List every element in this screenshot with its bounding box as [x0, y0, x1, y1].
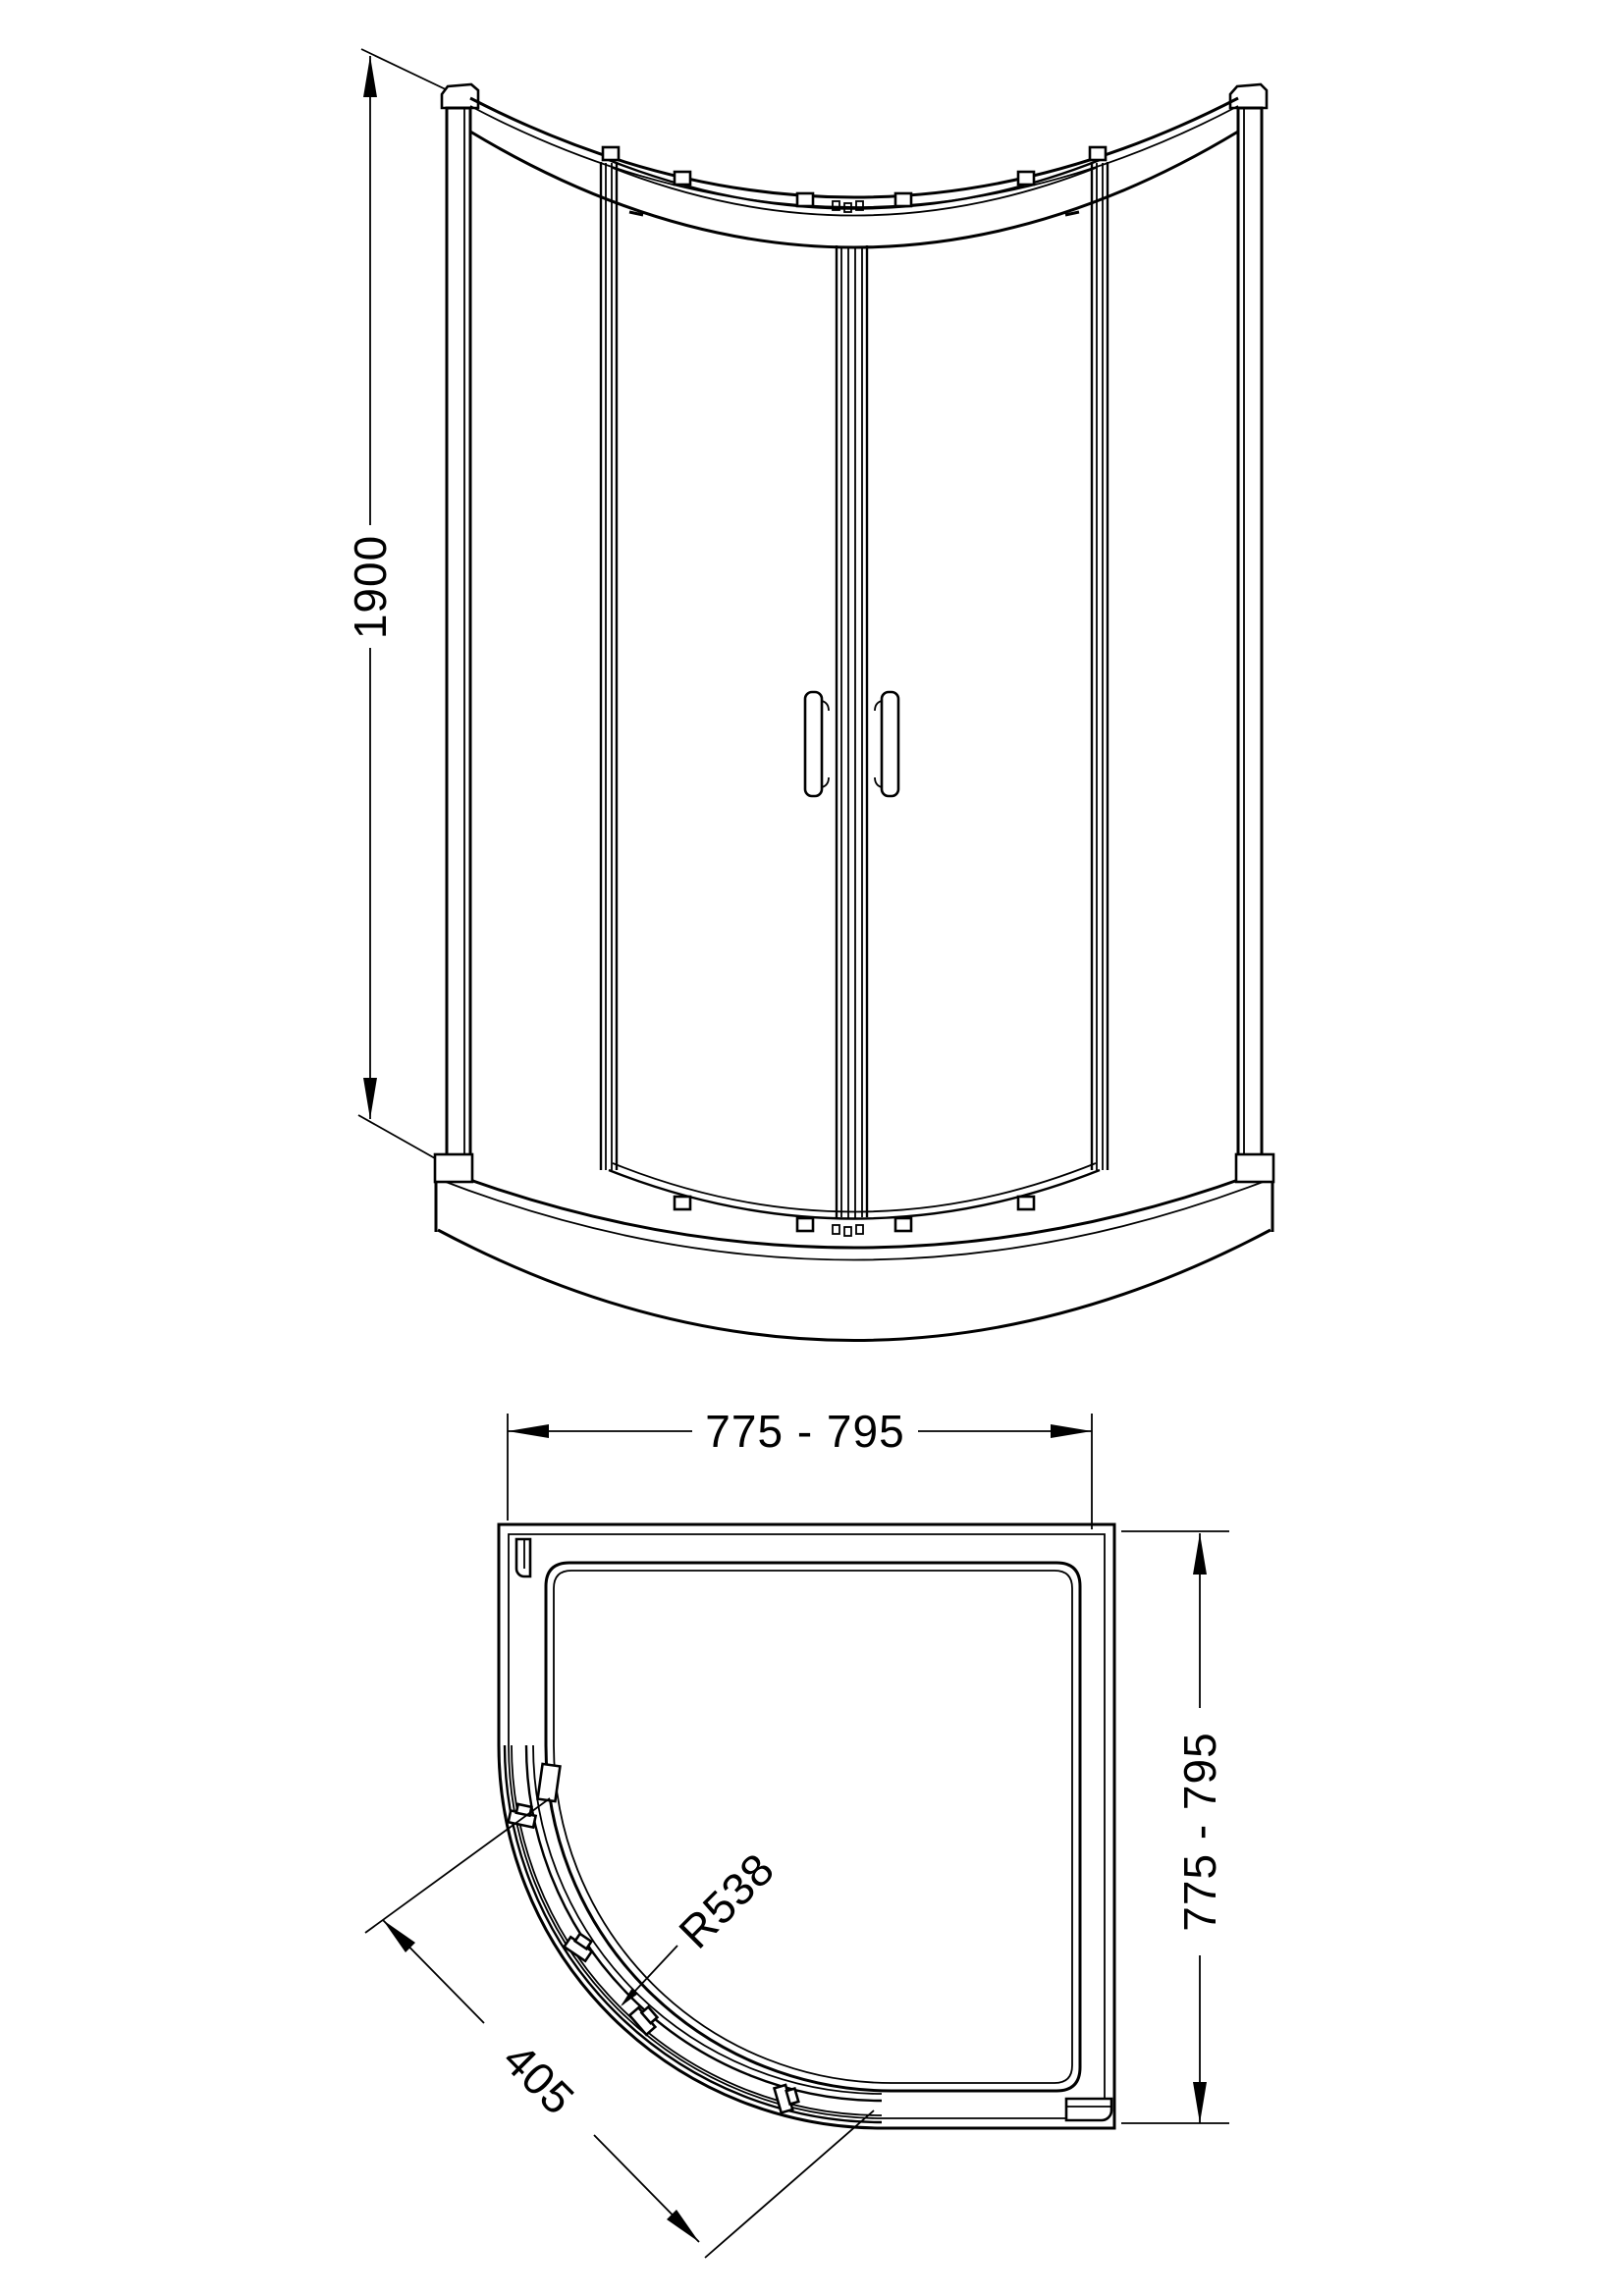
- roller-bracket: [1018, 172, 1034, 185]
- roller-bracket: [675, 1197, 690, 1209]
- radius-dimension: R538: [621, 1842, 784, 2006]
- tray-outline: [499, 1524, 1114, 2128]
- roller-bracket: [895, 193, 911, 206]
- drawing-page: 1900: [0, 0, 1623, 2296]
- door-opening-dimension: 405: [365, 1798, 874, 2258]
- rail-top-edge: [470, 98, 1238, 197]
- panel-end-cap: [538, 1764, 561, 1801]
- roller-bracket: [603, 147, 619, 160]
- plan-view: 775 - 795 775 - 795 R538 405: [365, 1406, 1229, 2258]
- guide-block: [844, 1227, 851, 1236]
- bottom-rail: [609, 1163, 1100, 1236]
- channel-shoe-right: [1236, 1154, 1273, 1182]
- channel-shoe-left: [435, 1154, 472, 1182]
- tray-outer-inner-line: [509, 1534, 1105, 2118]
- fixed-panel-right: [1065, 162, 1108, 1170]
- shower-tray-front: [435, 1154, 1273, 1341]
- door-opening-dimension-label: 405: [493, 2033, 584, 2124]
- roller-bracket: [509, 1803, 538, 1828]
- front-elevation-view: 1900: [345, 49, 1273, 1341]
- dimension-arrow-left-icon: [508, 1424, 549, 1438]
- roller-bracket: [1018, 1197, 1034, 1209]
- dimension-arrow-up-icon: [363, 56, 377, 97]
- guide-block: [833, 1225, 839, 1234]
- height-dimension-label: 1900: [345, 535, 396, 639]
- fixed-panel-left: [601, 162, 643, 1170]
- roller-bracket: [1090, 147, 1106, 160]
- guide-block: [856, 1225, 863, 1234]
- depth-dimension: 775 - 795: [1121, 1531, 1229, 2123]
- left-wall-profile: [442, 84, 478, 1170]
- door-handle-right: [875, 692, 898, 796]
- wall-profile-bracket: [516, 1539, 530, 1576]
- right-wall-profile: [1230, 84, 1267, 1170]
- door-handle-left: [805, 692, 829, 796]
- wall-profile-top-left: [516, 1539, 530, 1576]
- roller-bracket: [797, 193, 813, 206]
- dimension-arrow-down-icon: [363, 1078, 377, 1119]
- extension-line: [365, 1798, 550, 1933]
- wall-profile-bracket: [1066, 2099, 1111, 2120]
- wall-profile-body: [1238, 108, 1262, 1170]
- roller-bracket: [797, 1218, 813, 1231]
- tray-rim: [438, 1168, 1271, 1248]
- tray-outer-edge: [499, 1524, 1114, 2128]
- radius-dimension-label: R538: [669, 1842, 784, 1957]
- dimension-arrow-up-icon: [1193, 1533, 1207, 1575]
- handle-bar: [805, 692, 822, 796]
- wall-profile-bottom-right: [1066, 2099, 1111, 2120]
- sliding-door-stiles: [837, 245, 867, 1218]
- height-dimension: 1900: [345, 49, 473, 1180]
- wall-profile-cap: [1230, 84, 1267, 108]
- roller-brackets-top: [603, 147, 1106, 212]
- roller-bracket: [895, 1218, 911, 1231]
- dimension-arrow-right-icon: [1051, 1424, 1092, 1438]
- dimension-arrow-down-icon: [1193, 2082, 1207, 2123]
- curved-top-rail: [470, 98, 1238, 247]
- inner-rim-inner-line: [554, 1571, 1072, 2083]
- width-dimension: 775 - 795: [508, 1406, 1092, 1529]
- wall-profile-cap: [442, 84, 478, 108]
- wall-profile-body: [447, 108, 470, 1170]
- handle-bar: [882, 692, 898, 796]
- roller-bracket: [675, 172, 690, 185]
- extension-line: [705, 2110, 874, 2258]
- shower-enclosure-technical-drawing: 1900: [0, 0, 1623, 2296]
- width-dimension-label: 775 - 795: [705, 1406, 904, 1457]
- inner-rim-edge: [546, 1563, 1080, 2091]
- tray-inner-rim: [546, 1563, 1080, 2091]
- depth-dimension-label: 775 - 795: [1174, 1732, 1225, 1931]
